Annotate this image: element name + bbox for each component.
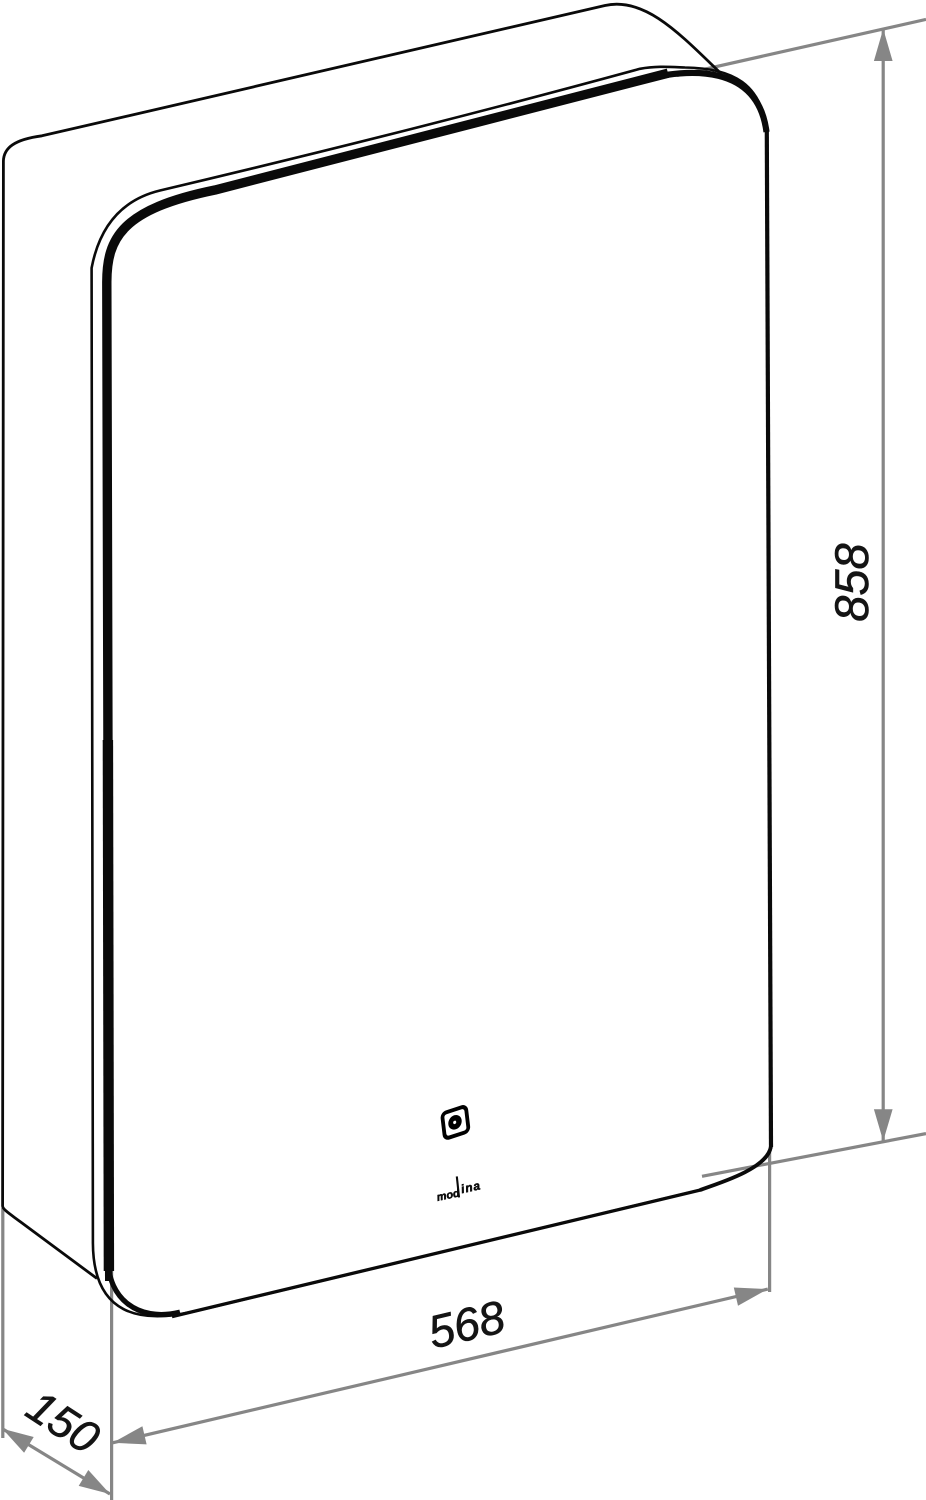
svg-text:858: 858: [825, 543, 878, 621]
